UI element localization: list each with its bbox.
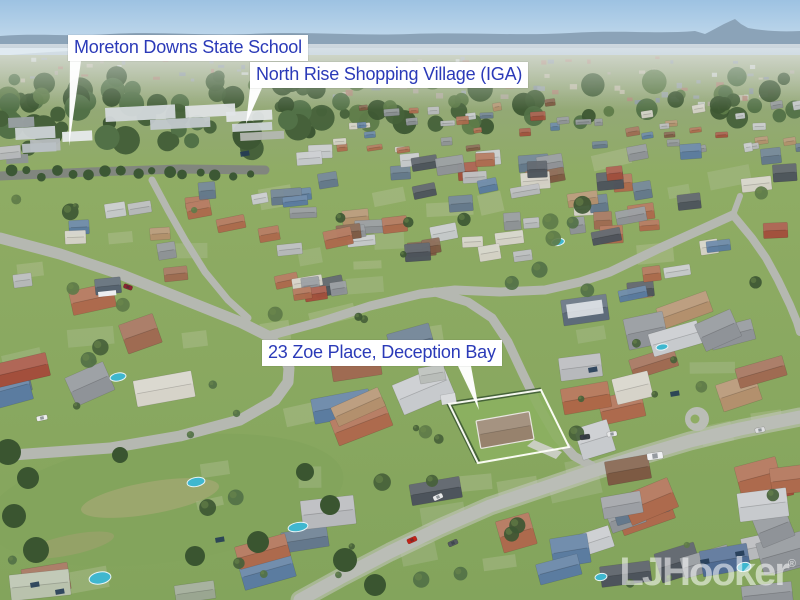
tree-highlight	[533, 263, 540, 270]
street-tree	[6, 165, 18, 177]
house	[594, 118, 603, 126]
tree-highlight	[74, 403, 77, 406]
house	[349, 123, 358, 130]
lawn-patch	[458, 473, 492, 492]
house	[492, 102, 502, 111]
tree	[542, 213, 558, 229]
street-tree	[197, 169, 205, 177]
street-tree	[83, 169, 94, 180]
tree-highlight	[579, 396, 582, 399]
tree	[509, 517, 525, 533]
tree-highlight	[82, 354, 89, 361]
tree	[349, 543, 355, 549]
tree	[364, 574, 386, 596]
tree	[23, 537, 49, 563]
house	[664, 131, 675, 137]
tree	[419, 425, 432, 438]
tree-highlight	[336, 572, 339, 575]
house	[198, 181, 216, 200]
house	[475, 153, 495, 167]
tree	[233, 557, 244, 568]
tree-highlight	[375, 475, 383, 483]
house	[258, 225, 281, 243]
tree	[320, 495, 340, 515]
tree	[354, 313, 362, 321]
street-tree	[148, 167, 155, 174]
tree-highlight	[697, 382, 702, 387]
tree	[260, 570, 268, 578]
lawn-patch	[353, 260, 381, 269]
house	[427, 106, 439, 114]
house	[478, 243, 502, 262]
house	[792, 100, 800, 110]
house	[795, 143, 800, 152]
tree	[17, 467, 39, 489]
tree-highlight	[756, 188, 762, 194]
tree-highlight	[506, 277, 512, 283]
tree	[72, 203, 79, 210]
tree-highlight	[671, 357, 674, 360]
label-school: Moreton Downs State School	[68, 35, 308, 61]
tree-highlight	[355, 314, 359, 318]
roof-sun-side	[527, 161, 547, 170]
house	[448, 195, 473, 213]
house	[527, 161, 548, 178]
house	[329, 281, 347, 297]
scene-layers	[0, 0, 800, 600]
house	[292, 286, 312, 300]
street-tree	[37, 173, 46, 182]
tree	[185, 546, 205, 566]
lawn-patch	[108, 231, 133, 244]
label-subject-property: 23 Zoe Place, Deception Bay	[262, 340, 502, 366]
tree	[184, 133, 199, 148]
tree-highlight	[117, 299, 123, 305]
tree	[278, 110, 298, 130]
tree-highlight	[582, 285, 588, 291]
lawn-patch	[346, 276, 384, 294]
house	[641, 110, 654, 119]
house	[277, 242, 303, 256]
roof-sun-side	[593, 211, 612, 221]
street-tree	[164, 166, 176, 178]
house	[383, 108, 399, 116]
tree-highlight	[415, 573, 422, 580]
cul-de-sac-island	[691, 415, 700, 424]
tree	[531, 262, 547, 278]
house	[290, 207, 317, 219]
house	[406, 117, 418, 125]
street-tree	[177, 170, 187, 180]
street-tree	[99, 165, 110, 176]
roof-sun-side	[475, 153, 494, 161]
house	[530, 111, 546, 121]
tree	[578, 396, 585, 403]
tree-highlight	[633, 340, 637, 344]
house	[12, 273, 32, 289]
house	[65, 230, 87, 244]
house	[544, 98, 555, 106]
tree-highlight	[414, 426, 417, 429]
street-tree	[133, 168, 143, 178]
tree-highlight	[192, 208, 195, 211]
tree	[2, 504, 26, 528]
house	[763, 222, 788, 238]
house	[735, 113, 745, 120]
tree-highlight	[12, 196, 16, 200]
house	[523, 217, 540, 229]
house	[743, 142, 753, 152]
tree-highlight	[188, 432, 191, 435]
tree	[400, 251, 407, 258]
house	[390, 165, 411, 180]
tree-highlight	[435, 435, 439, 439]
tree-highlight	[684, 543, 687, 546]
house	[692, 104, 706, 114]
tree-highlight	[427, 476, 432, 481]
tree-highlight	[349, 544, 352, 547]
house	[409, 108, 419, 114]
building-roof	[62, 130, 92, 142]
house	[456, 116, 469, 125]
tree	[247, 531, 269, 553]
tree	[268, 307, 283, 322]
tree-highlight	[511, 519, 518, 526]
tree	[413, 571, 429, 587]
tree	[413, 425, 419, 431]
tree	[81, 352, 97, 368]
house	[783, 137, 796, 146]
tree-highlight	[404, 218, 409, 223]
scene-svg	[0, 0, 800, 600]
house	[441, 137, 453, 146]
tree	[92, 339, 108, 355]
aerial-photo: Moreton Downs State School North Rise Sh…	[0, 0, 800, 600]
house	[473, 127, 482, 133]
car-windshield	[652, 453, 658, 459]
house	[296, 151, 322, 166]
building-roof	[15, 126, 56, 140]
house	[503, 212, 521, 231]
roof-ridge	[430, 110, 438, 111]
tree	[228, 489, 244, 505]
tree-highlight	[234, 411, 237, 414]
house	[680, 143, 702, 160]
tree	[632, 339, 641, 348]
house	[519, 128, 531, 137]
house	[606, 165, 624, 180]
house	[642, 265, 662, 282]
tree-highlight	[768, 490, 774, 496]
house	[364, 131, 376, 138]
tree	[670, 356, 677, 363]
tree	[403, 217, 413, 227]
lawn-patch	[181, 330, 208, 348]
tree-highlight	[9, 556, 13, 560]
tree	[95, 125, 120, 150]
tree-highlight	[547, 232, 554, 239]
tree-highlight	[459, 214, 465, 220]
house	[163, 266, 188, 283]
street-tree	[22, 166, 30, 174]
house	[772, 163, 797, 182]
tree-highlight	[544, 215, 551, 222]
tree	[8, 555, 17, 564]
tree	[696, 381, 708, 393]
tree	[773, 109, 787, 123]
house	[466, 144, 481, 151]
tree	[187, 431, 194, 438]
roof-sun-side	[763, 222, 788, 231]
house	[357, 122, 367, 128]
house	[462, 236, 483, 248]
tree-highlight	[269, 308, 276, 315]
house	[592, 141, 608, 149]
car-windshield	[583, 435, 587, 438]
house	[715, 132, 728, 138]
tree-highlight	[568, 218, 573, 223]
tree-highlight	[751, 277, 757, 283]
house	[404, 243, 431, 263]
house	[752, 123, 766, 131]
house	[317, 171, 338, 189]
house	[440, 120, 455, 126]
tree	[567, 217, 579, 229]
tree	[335, 572, 342, 579]
tree-highlight	[64, 205, 72, 213]
tree	[11, 194, 21, 204]
street-tree	[247, 170, 254, 177]
tree-highlight	[401, 252, 404, 255]
building-roof	[8, 117, 34, 128]
tree-highlight	[94, 341, 101, 348]
tree-highlight	[234, 559, 239, 564]
tree-highlight	[68, 283, 74, 289]
tree	[296, 463, 314, 481]
street-tree	[209, 169, 220, 180]
tree	[373, 473, 391, 491]
house	[359, 105, 368, 111]
watermark-registered-mark: ®	[788, 558, 796, 570]
tree	[580, 283, 594, 297]
street-tree	[229, 172, 237, 180]
tree	[755, 186, 768, 199]
roof-sun-side	[503, 212, 521, 222]
tree	[333, 548, 357, 572]
car-windshield	[610, 432, 614, 435]
tree	[684, 542, 690, 548]
house	[575, 119, 591, 125]
house	[737, 488, 790, 523]
tree-highlight	[201, 501, 209, 509]
house	[513, 249, 533, 262]
house	[557, 116, 570, 124]
house	[689, 127, 701, 134]
house	[480, 112, 494, 118]
roof-ridge	[666, 134, 673, 135]
tree	[165, 134, 179, 148]
tree-highlight	[455, 568, 461, 574]
house	[667, 139, 680, 146]
tree-highlight	[209, 381, 213, 385]
tree	[67, 282, 80, 295]
label-shopping-village: North Rise Shopping Village (IGA)	[250, 62, 528, 88]
house	[770, 100, 783, 109]
house	[632, 180, 653, 200]
watermark-brand: LJHooker	[619, 550, 788, 594]
house	[677, 193, 702, 211]
car	[580, 434, 591, 440]
tree-highlight	[337, 214, 341, 218]
tree	[651, 391, 658, 398]
tree	[199, 499, 216, 516]
tree	[116, 298, 130, 312]
tree	[191, 207, 197, 213]
tree	[505, 276, 519, 290]
house	[333, 138, 347, 145]
tree	[426, 475, 438, 487]
tree	[112, 447, 128, 463]
house	[760, 147, 782, 165]
street-tree	[52, 165, 63, 176]
house	[104, 201, 127, 219]
roof-sun-side	[795, 143, 800, 148]
tree	[335, 213, 345, 223]
tree-highlight	[570, 427, 577, 434]
tree	[434, 434, 444, 444]
tree-highlight	[652, 392, 655, 395]
ljhooker-watermark: LJHooker®	[619, 552, 796, 592]
tree	[209, 380, 218, 389]
lawn-patch	[690, 362, 735, 374]
tree-highlight	[73, 204, 76, 207]
house	[150, 227, 171, 241]
roof-ridge	[361, 107, 366, 108]
tree-highlight	[230, 491, 237, 498]
house	[0, 145, 21, 160]
tree	[545, 231, 561, 247]
tree	[233, 410, 240, 417]
tree	[457, 213, 470, 226]
car	[607, 431, 618, 437]
street-tree	[116, 166, 126, 176]
tree-highlight	[575, 198, 583, 206]
house	[659, 123, 669, 129]
tree	[454, 567, 468, 581]
tree	[574, 196, 592, 214]
tree-highlight	[261, 571, 265, 575]
tree	[73, 402, 80, 409]
house	[156, 241, 177, 260]
building-roof	[22, 142, 56, 153]
street-tree	[69, 170, 78, 179]
roof-sun-side	[65, 230, 86, 238]
roof-ridge	[661, 126, 667, 127]
car-windshield	[758, 428, 762, 432]
tree	[749, 276, 761, 288]
tree-highlight	[420, 427, 426, 433]
tree	[767, 489, 779, 501]
